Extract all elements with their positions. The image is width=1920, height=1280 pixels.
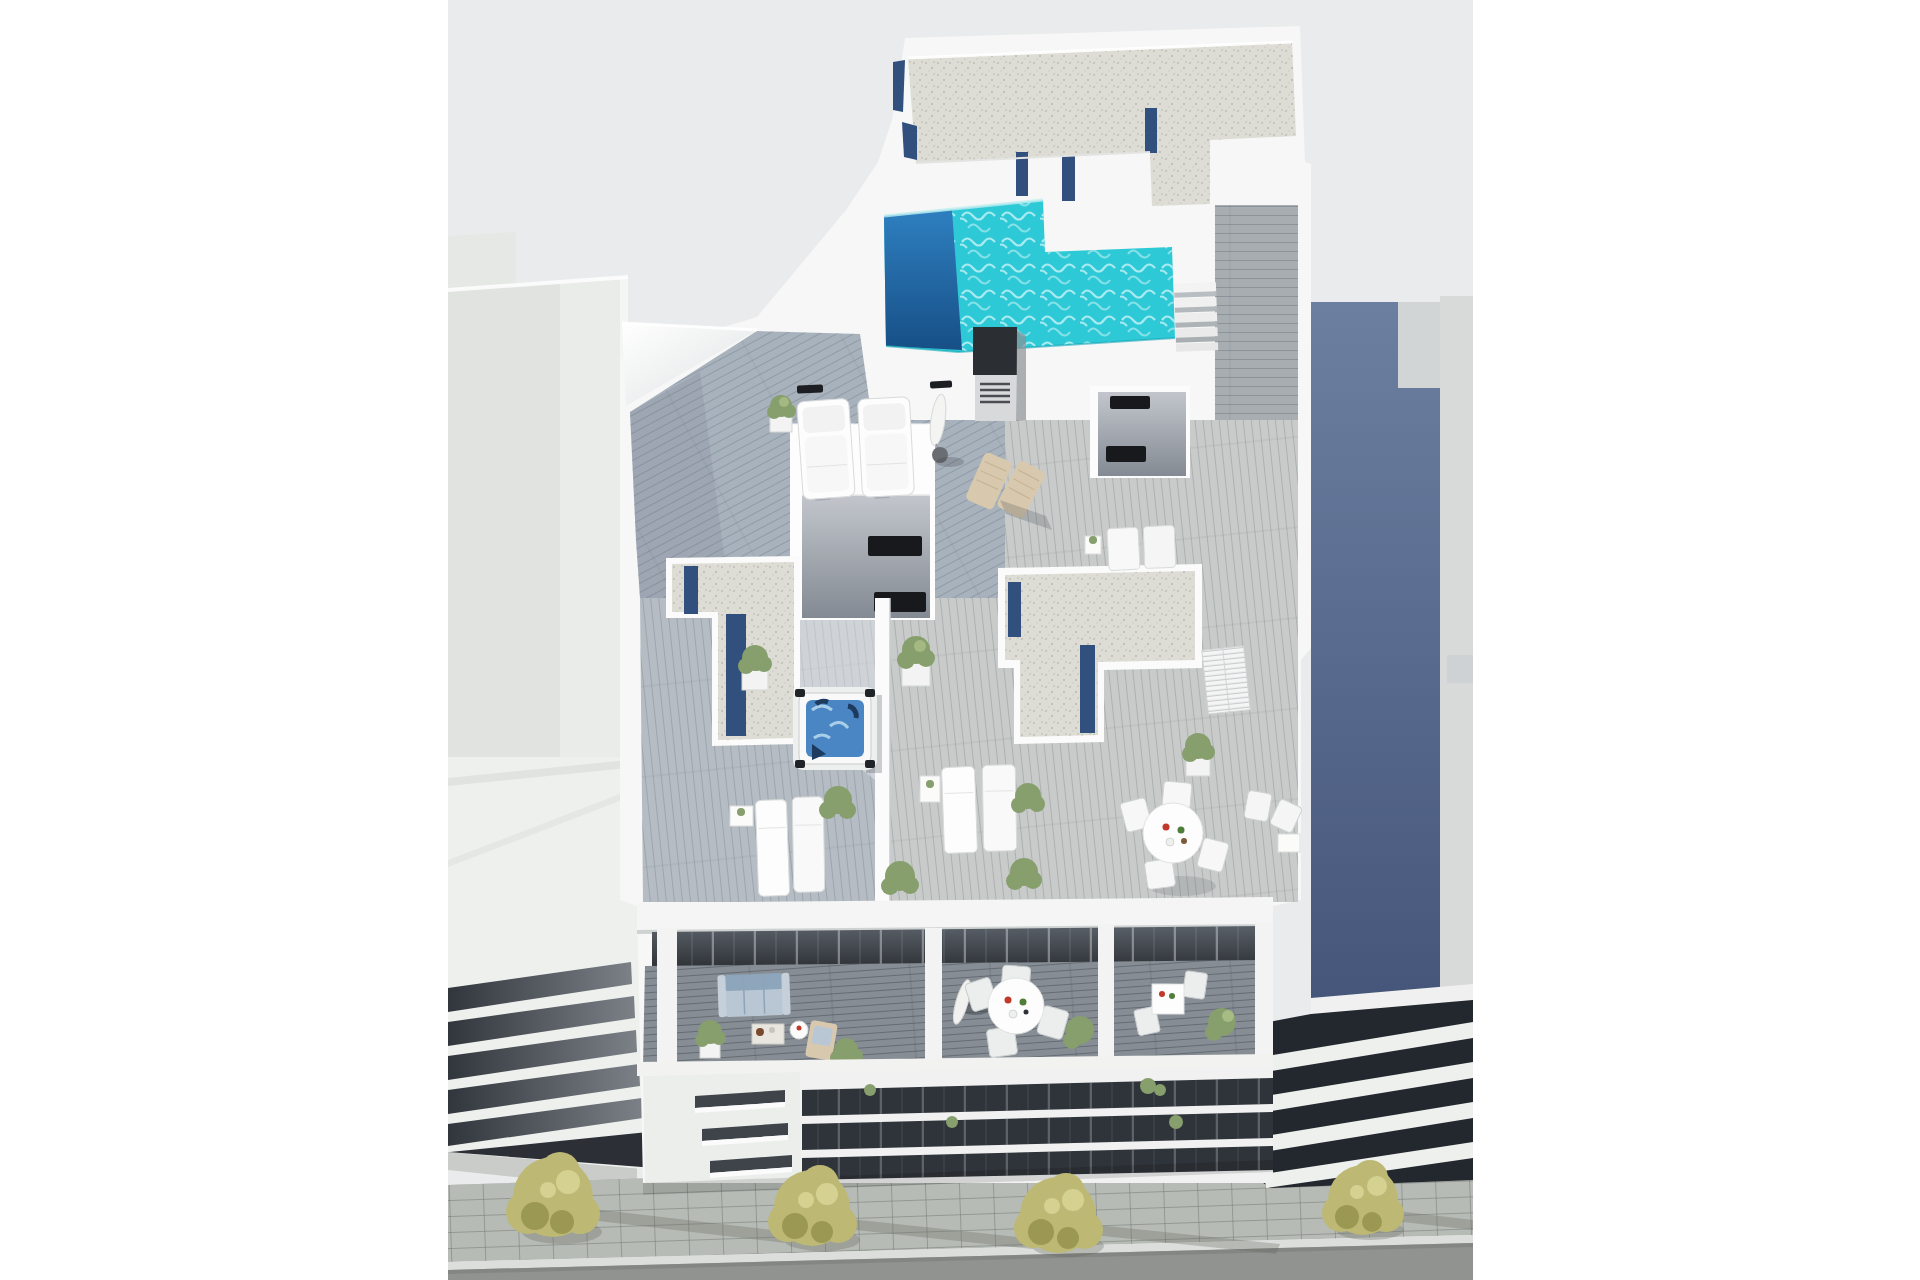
bistro-table [1152,984,1184,1014]
skylight-strip-4 [1080,645,1095,733]
skylight-strip-3 [1008,582,1021,637]
side-table-right [920,776,940,802]
glass-strip-5 [1145,108,1157,153]
left-neighbor-face-right [560,277,628,757]
glass-strip-1 [893,60,905,112]
balcony-divider-1 [925,928,942,1064]
daybed-2 [857,397,914,500]
jacuzzi [793,687,882,773]
jacuzzi-jet-2 [816,701,828,704]
pool-stairs [1174,282,1218,351]
glass-strip-2 [902,122,917,160]
balcony-level [643,922,1273,1068]
glass-strip-4 [1062,155,1075,201]
daybed-1 [797,398,856,501]
balcony-divider-2 [1098,924,1114,1060]
right-neighbor-roof-strip [1440,296,1473,1008]
right-neighbor-roof-notch [1398,302,1440,388]
chimney-side [1016,330,1026,421]
right-neighbor-blue-wall [1311,302,1440,998]
skylight-strip-1 [684,566,698,614]
corridor-deck-planks [1215,205,1298,420]
balcony-end-wall-left [657,928,677,1066]
stair-bulkhead-right [1090,386,1190,478]
render-canvas: Aerial 3D architectural rendering of a m… [0,0,1920,1280]
architectural-render: Aerial 3D architectural rendering of a m… [0,0,1920,1280]
louvered-doors [1202,646,1250,714]
small-side-table [1278,834,1300,852]
balcony-sofa [717,973,790,1017]
balcony-coffee-table [752,1024,784,1044]
balcony-round-table [988,978,1044,1034]
pool-deep-end [884,210,962,350]
round-table-top [1143,803,1203,863]
right-neighbor-setback [1447,655,1473,683]
left-neighbor-roof-step [448,232,516,292]
balcony-end-wall-right [1255,922,1273,1062]
chimney-vent [973,327,1026,421]
